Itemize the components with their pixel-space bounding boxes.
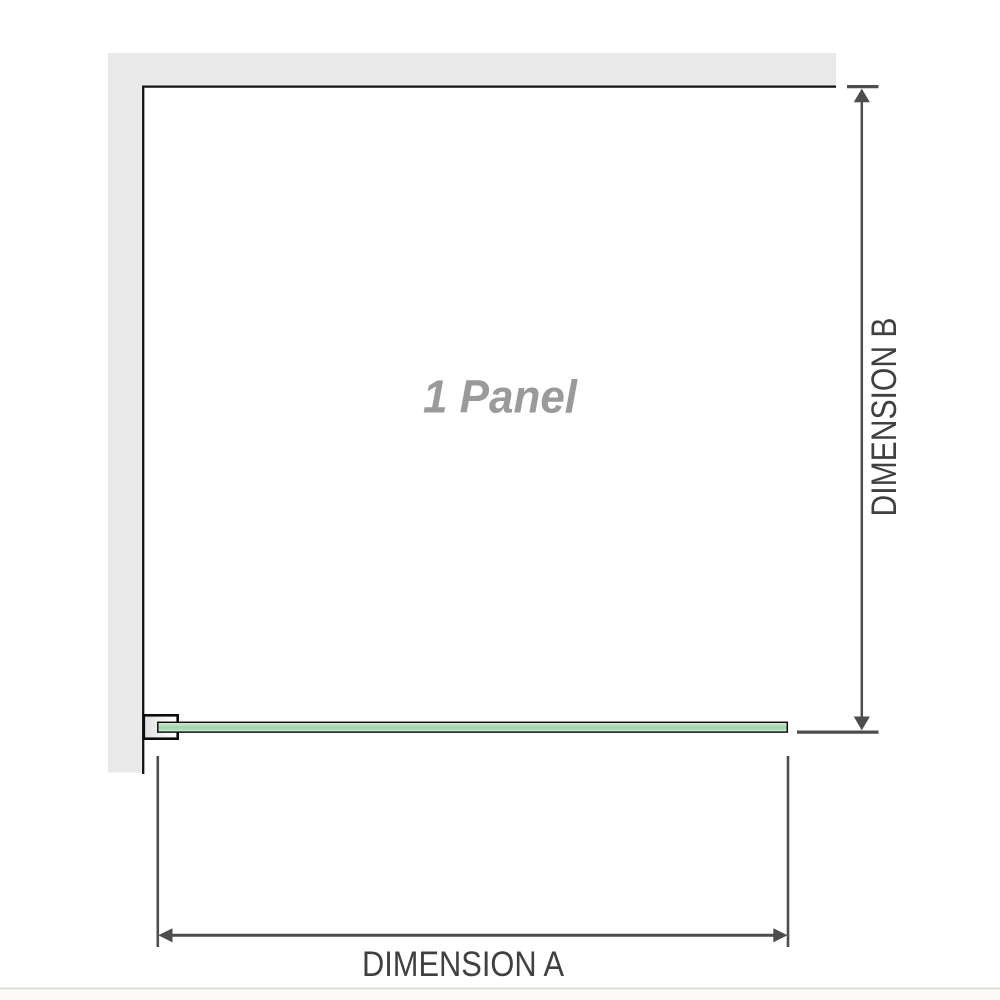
- svg-text:DIMENSION B: DIMENSION B: [864, 318, 904, 517]
- svg-text:1 Panel: 1 Panel: [423, 370, 578, 422]
- svg-text:DIMENSION A: DIMENSION A: [362, 944, 564, 984]
